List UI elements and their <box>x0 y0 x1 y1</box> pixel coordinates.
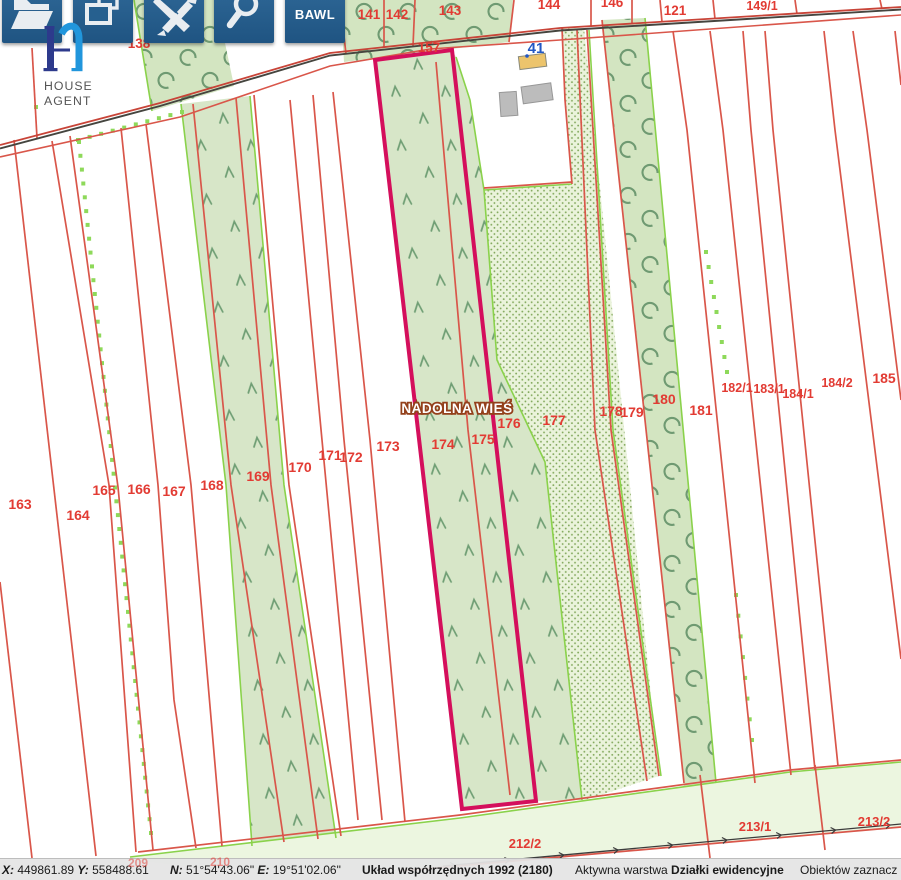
svg-text:177: 177 <box>542 412 566 428</box>
svg-text:149/1: 149/1 <box>746 0 777 13</box>
svg-text:41: 41 <box>528 40 545 57</box>
svg-text:184/2: 184/2 <box>821 376 852 390</box>
svg-text:179: 179 <box>620 404 644 420</box>
svg-text:163: 163 <box>8 496 32 512</box>
svg-text:NADOLNA WIEŚ: NADOLNA WIEŚ <box>401 401 512 416</box>
svg-text:142: 142 <box>386 7 409 22</box>
svg-text:213/1: 213/1 <box>739 819 772 834</box>
svg-text:164: 164 <box>66 507 90 523</box>
svg-text:121: 121 <box>664 3 687 18</box>
svg-text:166: 166 <box>127 481 151 497</box>
svg-text:HOUSE: HOUSE <box>44 79 93 93</box>
svg-text:173: 173 <box>376 438 400 454</box>
svg-text:184/1: 184/1 <box>782 387 813 401</box>
svg-text:157: 157 <box>418 40 441 55</box>
svg-text:167: 167 <box>162 483 186 499</box>
svg-text:143: 143 <box>439 3 462 18</box>
svg-text:174: 174 <box>431 436 455 452</box>
svg-text:AGENT: AGENT <box>44 94 91 108</box>
svg-text:165: 165 <box>92 482 116 498</box>
svg-text:170: 170 <box>288 459 312 475</box>
svg-text:168: 168 <box>200 477 224 493</box>
svg-text:185: 185 <box>872 370 896 386</box>
svg-text:180: 180 <box>652 391 676 407</box>
svg-text:169: 169 <box>246 468 270 484</box>
svg-text:141: 141 <box>358 7 381 22</box>
svg-text:175: 175 <box>471 431 495 447</box>
svg-text:183/1: 183/1 <box>753 382 784 396</box>
svg-text:172: 172 <box>339 449 363 465</box>
svg-text:182/1: 182/1 <box>721 381 752 395</box>
svg-text:176: 176 <box>497 415 521 431</box>
svg-text:146: 146 <box>601 0 624 10</box>
svg-text:181: 181 <box>689 402 713 418</box>
svg-text:213/2: 213/2 <box>858 814 891 829</box>
svg-text:144: 144 <box>538 0 561 12</box>
svg-text:212/2: 212/2 <box>509 836 542 851</box>
